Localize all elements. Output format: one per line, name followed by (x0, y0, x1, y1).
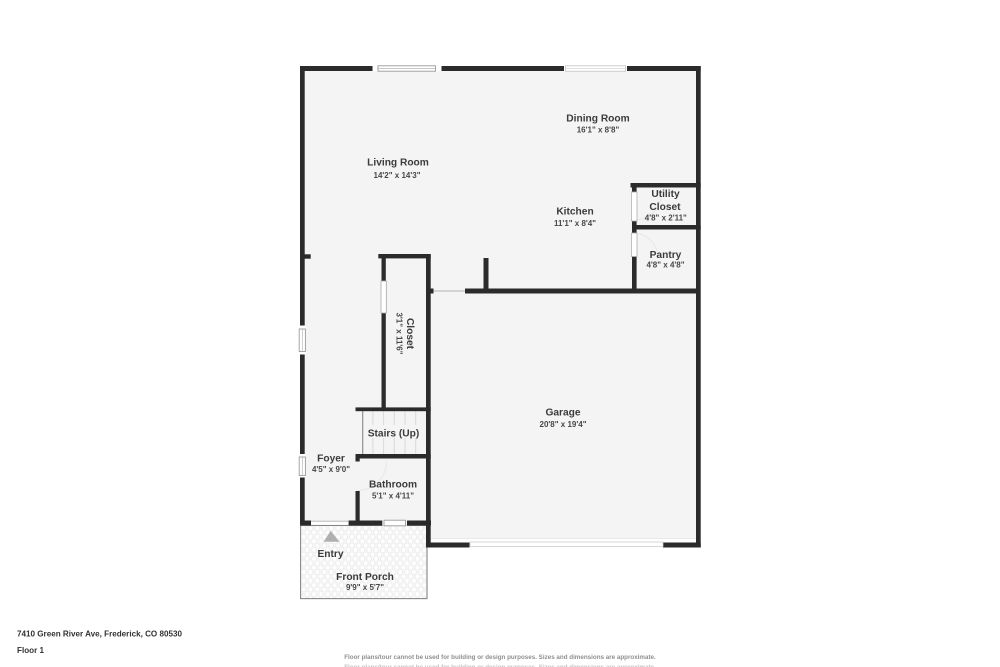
svg-text:4'5" x 9'0": 4'5" x 9'0" (312, 465, 350, 474)
svg-text:Front Porch: Front Porch (336, 572, 394, 583)
svg-text:9'9" x 5'7": 9'9" x 5'7" (346, 583, 384, 592)
svg-text:Utility: Utility (651, 189, 680, 200)
svg-text:Bathroom: Bathroom (369, 480, 417, 491)
svg-text:Foyer: Foyer (317, 454, 345, 465)
svg-text:Floor plans/tour cannot be use: Floor plans/tour cannot be used for buil… (344, 654, 656, 661)
svg-text:Pantry: Pantry (650, 250, 682, 261)
svg-text:Floor 1: Floor 1 (17, 646, 44, 655)
svg-text:4'8" x 2'11": 4'8" x 2'11" (645, 213, 687, 222)
svg-text:7410 Green River Ave, Frederic: 7410 Green River Ave, Frederick, CO 8053… (17, 629, 182, 638)
svg-text:3'1" x 11'6": 3'1" x 11'6" (395, 312, 404, 354)
svg-text:Kitchen: Kitchen (556, 206, 593, 217)
svg-text:14'2" x 14'3": 14'2" x 14'3" (374, 171, 421, 180)
svg-text:Closet: Closet (404, 318, 415, 350)
svg-text:11'1" x 8'4": 11'1" x 8'4" (554, 219, 596, 228)
svg-text:Dining Room: Dining Room (566, 113, 629, 124)
svg-text:4'8" x 4'8": 4'8" x 4'8" (646, 261, 684, 270)
svg-text:Living Room: Living Room (367, 158, 429, 169)
svg-text:Closet: Closet (649, 202, 681, 213)
svg-text:Garage: Garage (545, 408, 580, 419)
svg-text:Stairs (Up): Stairs (Up) (368, 428, 420, 439)
svg-text:16'1" x 8'8": 16'1" x 8'8" (577, 125, 620, 134)
svg-text:5'1" x 4'11": 5'1" x 4'11" (372, 491, 414, 500)
svg-text:20'8" x 19'4": 20'8" x 19'4" (540, 420, 587, 429)
svg-text:Entry: Entry (317, 549, 343, 560)
